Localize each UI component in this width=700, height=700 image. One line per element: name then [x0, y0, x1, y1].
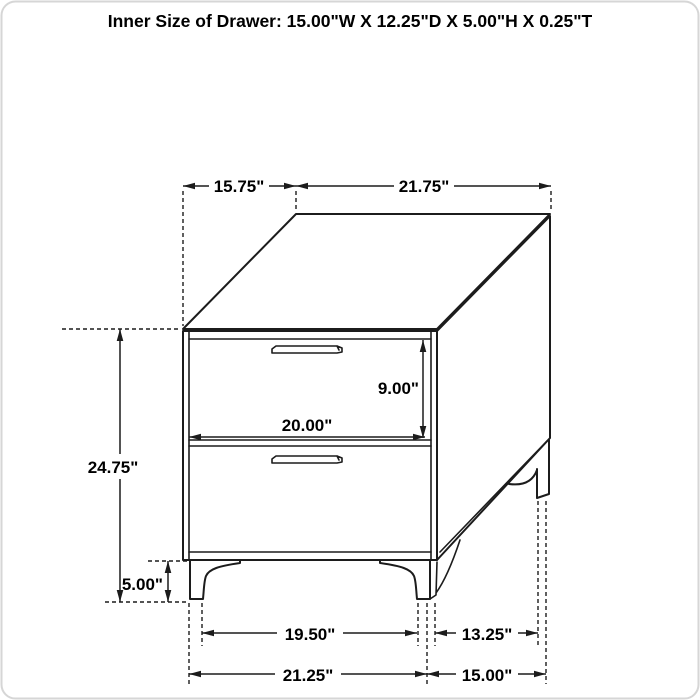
image-corner-frame: [2, 2, 699, 699]
label-base-depth: 15.00": [462, 666, 513, 685]
label-base-width: 21.25": [283, 666, 334, 685]
label-drawer-height: 9.00": [378, 379, 419, 398]
label-top-width: 21.75": [399, 177, 450, 196]
drawer-1-handle: [272, 346, 342, 353]
label-front-leg-span: 19.50": [285, 625, 336, 644]
front-right-leg-side: [430, 540, 460, 599]
dimension-drawing-svg: Inner Size of Drawer: 15.00"W X 12.25"D …: [0, 0, 700, 700]
label-top-depth: 15.75": [214, 177, 265, 196]
side-panel: [437, 216, 550, 560]
side-panel-bottom-edge: [440, 441, 547, 552]
back-right-leg: [509, 440, 549, 498]
nightstand-drawing: [183, 214, 550, 599]
label-overall-height: 24.75": [88, 458, 139, 477]
dimension-labels: 15.75" 21.75" 24.75" 9.00" 20.00" 5.00" …: [88, 177, 513, 685]
product-dimension-image: Inner Size of Drawer: 15.00"W X 12.25"D …: [0, 0, 700, 700]
front-right-leg: [380, 560, 430, 599]
drawer-2-handle: [272, 456, 342, 463]
page-title: Inner Size of Drawer: 15.00"W X 12.25"D …: [108, 11, 593, 31]
front-left-leg: [190, 560, 240, 599]
dimension-lines: [120, 186, 551, 674]
label-drawer-width: 20.00": [282, 416, 333, 435]
label-side-leg-span: 13.25": [462, 625, 513, 644]
label-leg-height: 5.00": [122, 575, 163, 594]
